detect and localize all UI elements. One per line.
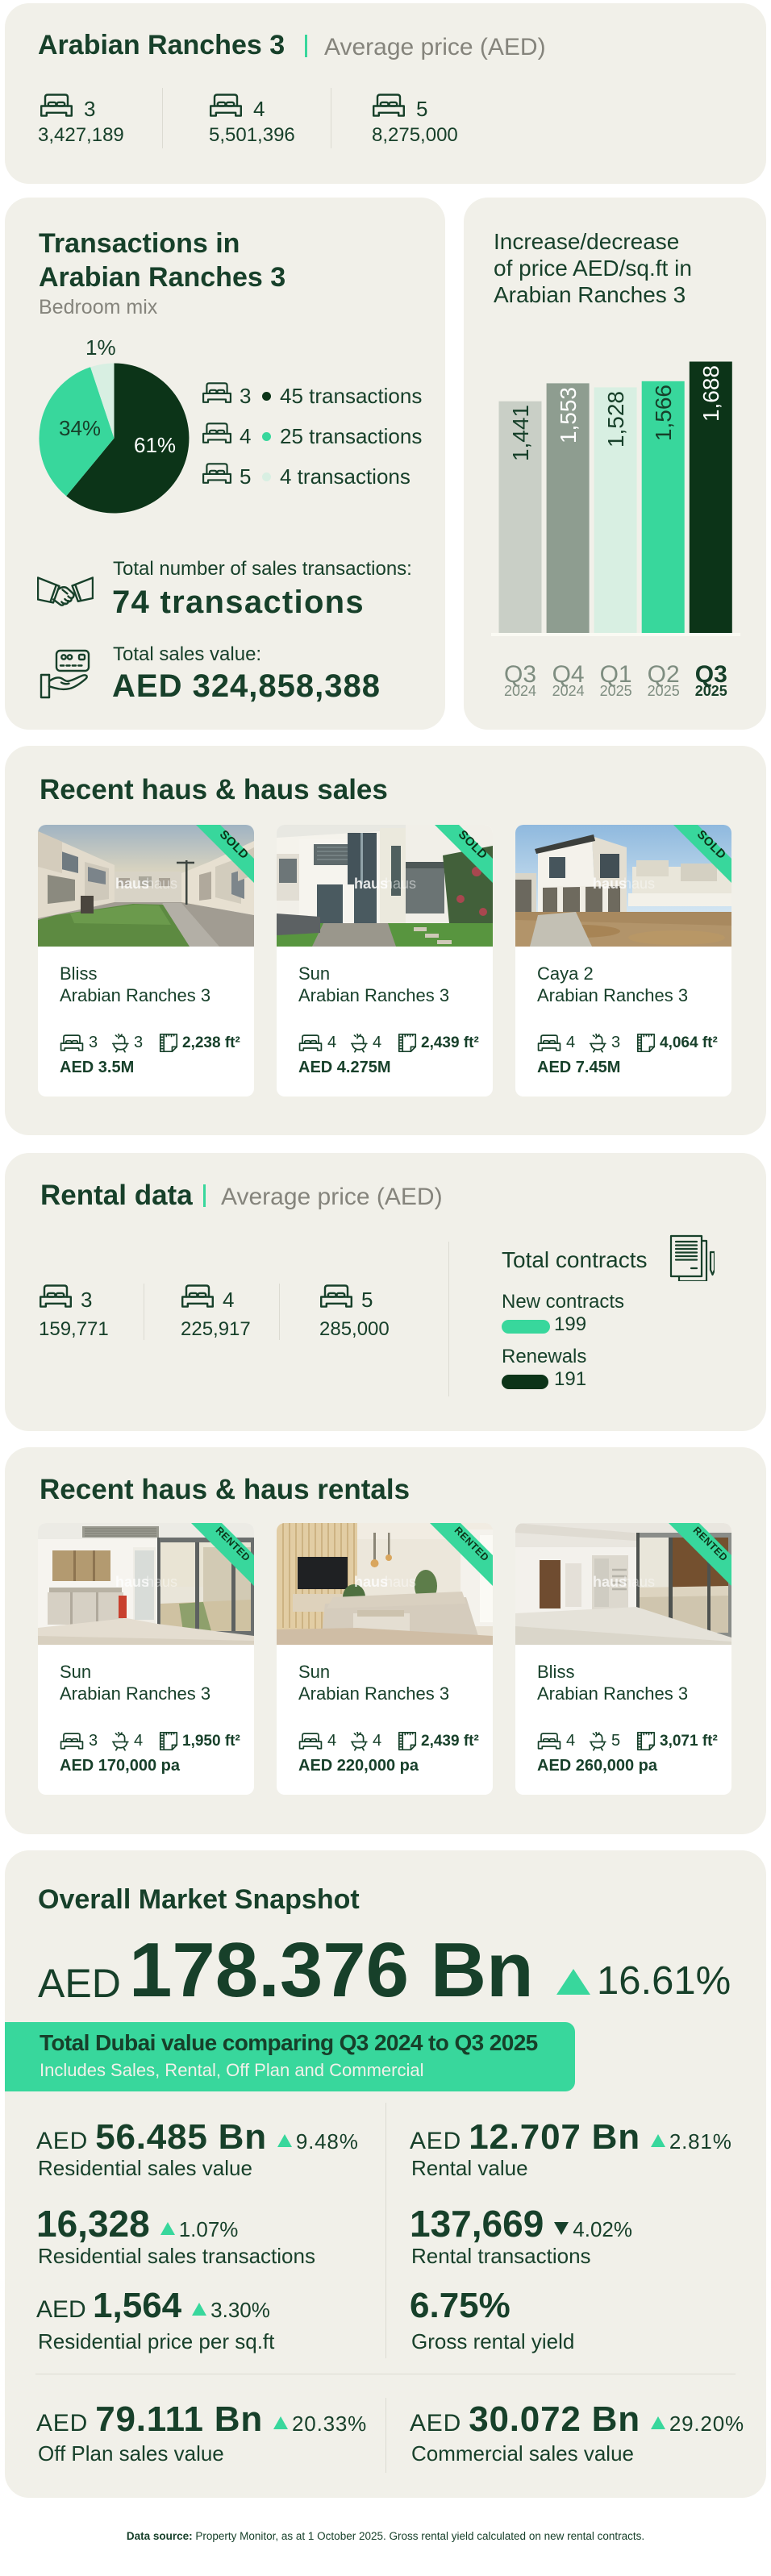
- svg-text:1,528: 1,528: [603, 391, 628, 447]
- svg-text:1,441: 1,441: [508, 405, 533, 461]
- svg-text:haus: haus: [593, 876, 627, 892]
- svg-text:1,688: 1,688: [698, 365, 723, 422]
- svg-text:2025: 2025: [600, 683, 632, 699]
- svg-text:haus: haus: [115, 1574, 149, 1590]
- svg-text:haus: haus: [623, 876, 655, 892]
- svg-text:haus: haus: [354, 1574, 388, 1590]
- svg-text:haus: haus: [385, 876, 416, 892]
- svg-text:haus: haus: [385, 1574, 416, 1590]
- svg-text:haus: haus: [115, 876, 149, 892]
- svg-text:2024: 2024: [552, 683, 585, 699]
- svg-text:2024: 2024: [504, 683, 536, 699]
- svg-text:haus: haus: [623, 1574, 655, 1590]
- svg-text:1,566: 1,566: [651, 385, 676, 441]
- svg-text:2025: 2025: [695, 683, 727, 699]
- svg-text:haus: haus: [146, 1574, 177, 1590]
- svg-text:2025: 2025: [648, 683, 680, 699]
- svg-text:haus: haus: [354, 876, 388, 892]
- svg-text:haus: haus: [593, 1574, 627, 1590]
- svg-text:haus: haus: [146, 876, 177, 892]
- svg-text:1,553: 1,553: [556, 387, 581, 443]
